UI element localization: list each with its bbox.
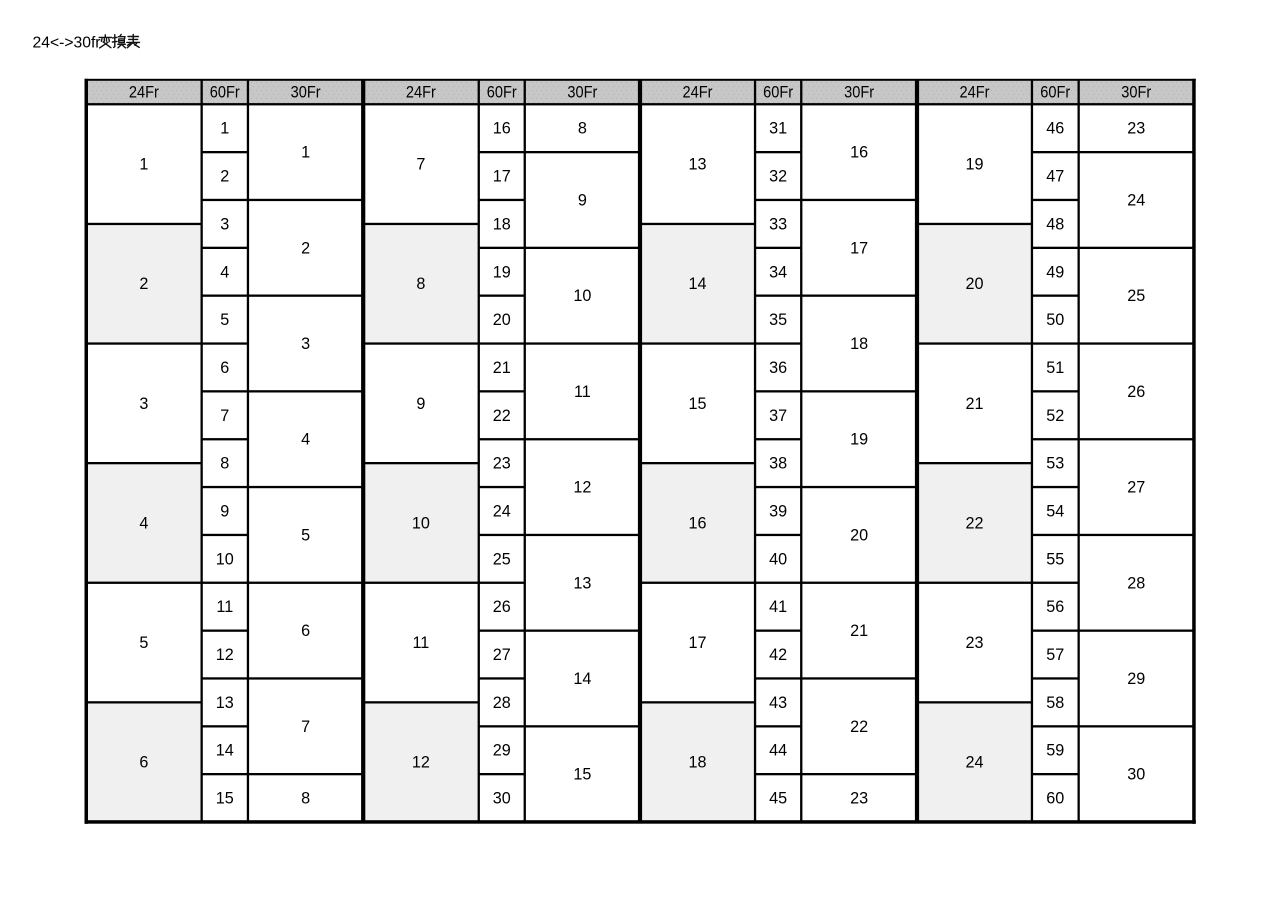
svg-text:12: 12: [573, 479, 591, 497]
svg-text:5: 5: [139, 634, 148, 652]
svg-text:54: 54: [1046, 503, 1064, 521]
svg-text:7: 7: [301, 718, 310, 736]
svg-text:60: 60: [1046, 790, 1064, 808]
svg-text:23: 23: [493, 455, 511, 473]
svg-text:28: 28: [493, 694, 511, 712]
svg-text:10: 10: [412, 515, 430, 533]
svg-text:12: 12: [216, 646, 234, 664]
svg-text:39: 39: [769, 503, 787, 521]
svg-text:28: 28: [1127, 574, 1145, 592]
svg-text:5: 5: [301, 526, 310, 544]
svg-text:24: 24: [1127, 192, 1145, 210]
svg-text:11: 11: [216, 598, 233, 616]
svg-text:19: 19: [965, 156, 983, 174]
svg-text:10: 10: [216, 550, 234, 568]
svg-text:60Fr: 60Fr: [210, 84, 241, 102]
svg-text:25: 25: [493, 550, 511, 568]
svg-text:19: 19: [493, 263, 511, 281]
svg-text:10: 10: [573, 287, 591, 305]
svg-text:35: 35: [769, 311, 787, 329]
svg-text:46: 46: [1046, 120, 1064, 138]
svg-text:27: 27: [1127, 479, 1145, 497]
svg-text:3: 3: [301, 335, 310, 353]
svg-text:45: 45: [769, 790, 787, 808]
svg-text:23: 23: [850, 790, 868, 808]
svg-text:4: 4: [139, 515, 148, 533]
svg-text:53: 53: [1046, 455, 1064, 473]
svg-text:24: 24: [493, 503, 511, 521]
svg-text:60Fr: 60Fr: [1040, 84, 1071, 102]
svg-text:8: 8: [220, 455, 229, 473]
svg-text:17: 17: [493, 168, 511, 186]
svg-text:2: 2: [139, 275, 148, 293]
svg-text:2: 2: [301, 239, 310, 257]
svg-text:32: 32: [769, 168, 787, 186]
svg-text:4: 4: [301, 431, 310, 449]
svg-text:17: 17: [688, 634, 706, 652]
svg-text:22: 22: [965, 515, 983, 533]
svg-text:60Fr: 60Fr: [487, 84, 518, 102]
svg-text:59: 59: [1046, 742, 1064, 760]
svg-text:44: 44: [769, 742, 787, 760]
svg-text:36: 36: [769, 359, 787, 377]
svg-text:6: 6: [139, 754, 148, 772]
svg-text:51: 51: [1046, 359, 1064, 377]
svg-text:3: 3: [220, 215, 229, 233]
svg-text:14: 14: [216, 742, 234, 760]
svg-text:50: 50: [1046, 311, 1064, 329]
svg-text:18: 18: [493, 215, 511, 233]
svg-text:30Fr: 30Fr: [844, 84, 875, 102]
svg-text:31: 31: [769, 120, 787, 138]
svg-text:9: 9: [220, 503, 229, 521]
svg-text:6: 6: [220, 359, 229, 377]
svg-text:9: 9: [578, 192, 587, 210]
svg-text:57: 57: [1046, 646, 1064, 664]
svg-text:15: 15: [573, 766, 591, 784]
svg-text:6: 6: [301, 622, 310, 640]
svg-text:20: 20: [493, 311, 511, 329]
svg-text:24: 24: [965, 754, 983, 772]
svg-text:40: 40: [769, 550, 787, 568]
svg-text:5: 5: [220, 311, 229, 329]
svg-text:7: 7: [416, 156, 425, 174]
svg-text:55: 55: [1046, 550, 1064, 568]
svg-text:34: 34: [769, 263, 787, 281]
svg-text:8: 8: [416, 275, 425, 293]
svg-text:47: 47: [1046, 168, 1064, 186]
svg-text:13: 13: [216, 694, 234, 712]
svg-text:12: 12: [412, 754, 430, 772]
svg-text:33: 33: [769, 215, 787, 233]
svg-text:52: 52: [1046, 407, 1064, 425]
svg-text:23: 23: [1127, 120, 1145, 138]
svg-text:7: 7: [220, 407, 229, 425]
svg-text:21: 21: [965, 395, 983, 413]
svg-text:13: 13: [573, 574, 591, 592]
svg-text:18: 18: [850, 335, 868, 353]
svg-text:29: 29: [493, 742, 511, 760]
svg-text:17: 17: [850, 239, 868, 257]
svg-text:22: 22: [493, 407, 511, 425]
svg-text:1: 1: [139, 156, 148, 174]
svg-text:21: 21: [493, 359, 511, 377]
svg-text:8: 8: [301, 790, 310, 808]
svg-text:11: 11: [574, 383, 591, 401]
svg-text:29: 29: [1127, 670, 1145, 688]
svg-text:4: 4: [220, 263, 229, 281]
svg-text:1: 1: [301, 144, 310, 162]
svg-text:30: 30: [493, 790, 511, 808]
svg-text:11: 11: [412, 634, 429, 652]
svg-text:48: 48: [1046, 215, 1064, 233]
svg-text:56: 56: [1046, 598, 1064, 616]
svg-text:25: 25: [1127, 287, 1145, 305]
svg-text:30Fr: 30Fr: [567, 84, 598, 102]
svg-text:38: 38: [769, 455, 787, 473]
svg-text:13: 13: [688, 156, 706, 174]
svg-text:24<->30fr: 24<->30fr: [33, 34, 101, 51]
svg-text:16: 16: [688, 515, 706, 533]
svg-text:58: 58: [1046, 694, 1064, 712]
svg-text:14: 14: [688, 275, 706, 293]
svg-text:8: 8: [578, 120, 587, 138]
svg-text:15: 15: [216, 790, 234, 808]
svg-text:23: 23: [965, 634, 983, 652]
svg-text:9: 9: [416, 395, 425, 413]
svg-text:20: 20: [850, 526, 868, 544]
svg-text:2: 2: [220, 168, 229, 186]
svg-text:30Fr: 30Fr: [291, 84, 322, 102]
svg-text:15: 15: [688, 395, 706, 413]
svg-text:24Fr: 24Fr: [683, 84, 714, 102]
svg-text:30: 30: [1127, 766, 1145, 784]
svg-text:24Fr: 24Fr: [129, 84, 160, 102]
svg-text:26: 26: [1127, 383, 1145, 401]
svg-text:43: 43: [769, 694, 787, 712]
svg-text:19: 19: [850, 431, 868, 449]
svg-text:18: 18: [688, 754, 706, 772]
svg-text:42: 42: [769, 646, 787, 664]
svg-text:49: 49: [1046, 263, 1064, 281]
svg-text:14: 14: [573, 670, 591, 688]
svg-text:27: 27: [493, 646, 511, 664]
svg-text:20: 20: [965, 275, 983, 293]
svg-text:24Fr: 24Fr: [406, 84, 437, 102]
svg-text:30Fr: 30Fr: [1121, 84, 1152, 102]
svg-text:21: 21: [850, 622, 868, 640]
svg-text:26: 26: [493, 598, 511, 616]
svg-text:24Fr: 24Fr: [960, 84, 991, 102]
svg-text:41: 41: [769, 598, 787, 616]
svg-text:16: 16: [493, 120, 511, 138]
svg-text:22: 22: [850, 718, 868, 736]
svg-text:60Fr: 60Fr: [763, 84, 794, 102]
svg-text:16: 16: [850, 144, 868, 162]
svg-text:37: 37: [769, 407, 787, 425]
svg-text:1: 1: [220, 120, 229, 138]
svg-text:3: 3: [139, 395, 148, 413]
